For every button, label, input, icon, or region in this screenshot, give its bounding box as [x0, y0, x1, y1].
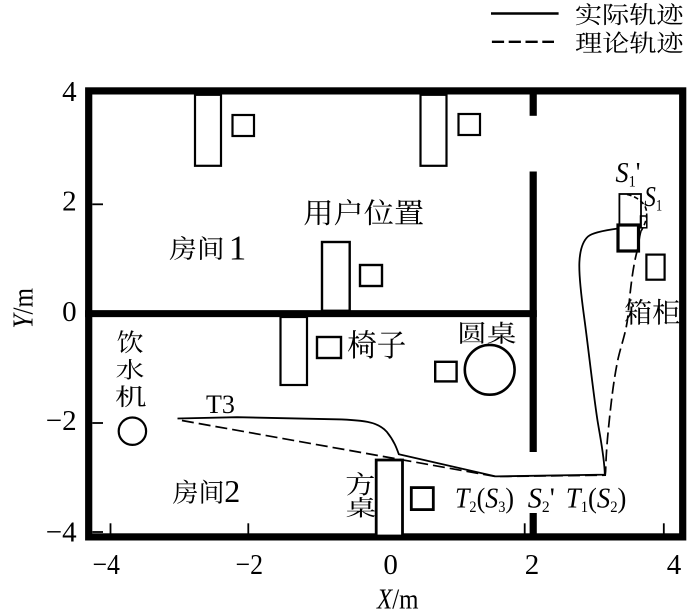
svg-text:−2: −2 — [236, 549, 264, 581]
svg-text:1: 1 — [229, 229, 247, 268]
svg-text:−4: −4 — [46, 517, 77, 549]
svg-text:0: 0 — [62, 296, 77, 328]
svg-text:−2: −2 — [46, 405, 77, 437]
svg-text:T3: T3 — [206, 390, 235, 419]
svg-text:4: 4 — [667, 549, 682, 581]
svg-text:2: 2 — [62, 186, 77, 218]
svg-text:X/m: X/m — [376, 583, 419, 610]
svg-text:0: 0 — [383, 549, 398, 581]
svg-text:Y/m: Y/m — [8, 288, 40, 329]
svg-text:S1': S1' — [616, 157, 641, 191]
svg-text:−4: −4 — [92, 549, 120, 581]
svg-text:S2': S2' — [528, 483, 555, 517]
svg-text:T1(S2): T1(S2) — [566, 483, 627, 517]
svg-text:2: 2 — [224, 473, 240, 509]
svg-text:2: 2 — [525, 549, 540, 581]
svg-text:T2(S3): T2(S3) — [455, 483, 514, 517]
svg-text:4: 4 — [62, 76, 77, 108]
